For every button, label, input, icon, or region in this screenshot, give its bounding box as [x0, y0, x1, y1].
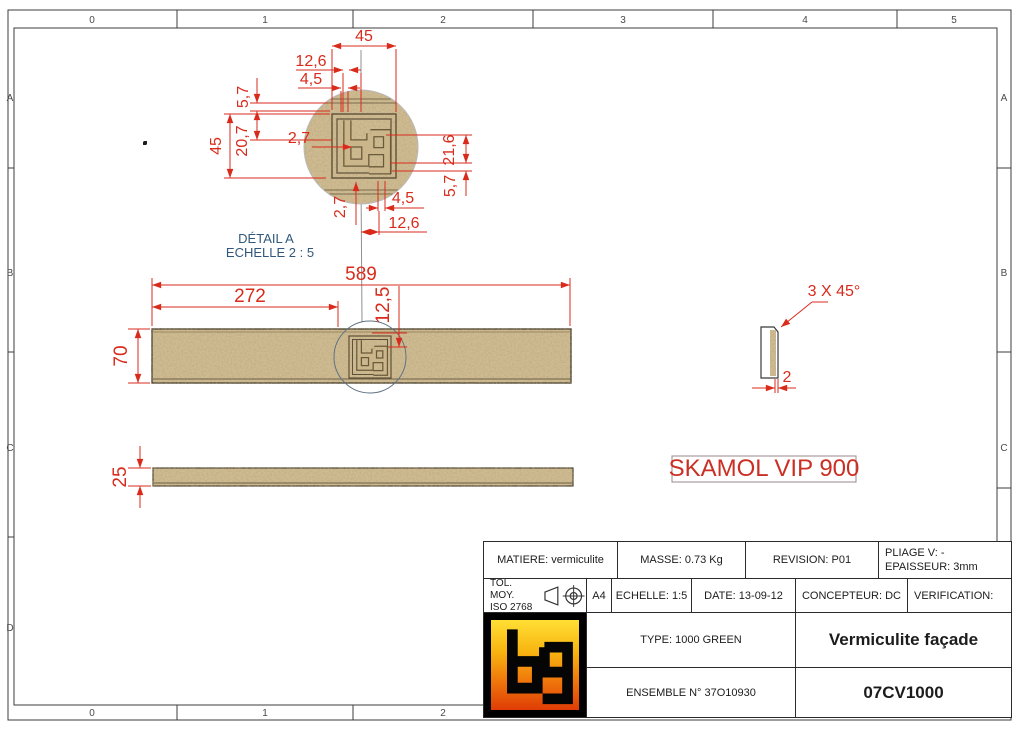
title-block-revision: REVISION: P01 [746, 542, 879, 579]
title-block-date: DATE: 13-09-12 [692, 579, 796, 613]
bg-logo-letters-icon [491, 620, 580, 710]
dim-edge: 2 [783, 369, 792, 386]
ruler-top-2: 2 [440, 15, 446, 26]
title-block-concepteur: CONCEPTEUR: DC [796, 579, 908, 613]
row-label-a-right: A [1001, 93, 1008, 104]
title-block-matiere: MATIERE: vermiculite [484, 542, 618, 579]
title-block-masse: MASSE: 0.73 Kg [618, 542, 746, 579]
bg-logo [484, 613, 587, 717]
bg-logo-gradient [491, 620, 579, 710]
detail-scale-label: ECHELLE 2 : 5 [226, 245, 314, 260]
detail-view: 45 12,6 4,5 5,7 20,7 45 2,7 21,6 5,7 4,5… [208, 28, 472, 322]
tolerance-line2: ISO 2768 [490, 602, 532, 614]
tolerance-line1: TOL. MOY. [490, 579, 539, 602]
ruler-bottom-1: 1 [262, 708, 268, 719]
ruler-top-5: 5 [951, 15, 957, 26]
title-block-ensemble: ENSEMBLE N° 37O10930 [587, 668, 796, 717]
dim-length: 589 [345, 264, 377, 285]
title-block-format: A4 [587, 579, 612, 613]
title-block-type: TYPE: 1000 GREEN [587, 613, 796, 668]
dim-width: 70 [111, 345, 132, 366]
dim-bottom-offset-1: 12,6 [388, 215, 419, 232]
ruler-bottom-0: 0 [89, 708, 95, 719]
dim-top-offset-2: 4,5 [300, 71, 322, 88]
title-block-echelle: ECHELLE: 1:5 [612, 579, 692, 613]
title-block-tolerance: TOL. MOY. ISO 2768 [484, 579, 587, 613]
material-stamp: SKAMOL VIP 900 [669, 455, 860, 482]
row-label-b-left: B [7, 268, 14, 279]
ruler-top-1: 1 [262, 15, 268, 26]
end-material-edge [770, 330, 776, 376]
row-label-b-right: B [1001, 268, 1008, 279]
dim-logo-height: 45 [208, 137, 225, 155]
ruler-top-0: 0 [89, 15, 95, 26]
plan-view: 589 272 12,5 70 [111, 264, 571, 393]
stamp-text: SKAMOL VIP 900 [669, 455, 860, 482]
row-label-a-left: A [7, 93, 14, 104]
ruler-top-4: 4 [802, 15, 808, 26]
detail-label: DÉTAIL A [238, 231, 294, 246]
dim-left-depth: 20,7 [234, 125, 251, 156]
dim-slot-left: 2,7 [288, 130, 310, 147]
stray-mark [143, 141, 147, 145]
ruler-bottom-2: 2 [440, 708, 446, 719]
pliage-value: PLIAGE V: - [885, 546, 945, 560]
projection-symbol-icon [543, 584, 586, 608]
row-label-c-left: C [6, 443, 13, 454]
dim-right-depth: 21,6 [441, 134, 458, 165]
dim-slot-bottom: 2,7 [332, 196, 349, 218]
dim-chamfer: 3 X 45° [808, 283, 861, 300]
dim-bottom-offset-2: 4,5 [392, 190, 414, 207]
dim-thickness: 25 [110, 466, 131, 487]
dim-logo-offset: 12,5 [373, 287, 394, 324]
drawing-title: Vermiculite façade [796, 613, 1011, 668]
end-view: 3 X 45° 2 [752, 283, 860, 393]
epaisseur-value: EPAISSEUR: 3mm [885, 560, 978, 574]
row-label-c-right: C [1000, 443, 1007, 454]
dim-top-offset-1: 12,6 [295, 53, 326, 70]
dim-left-edge: 5,7 [235, 86, 252, 108]
drawing-reference: 07CV1000 [796, 668, 1011, 717]
title-block-pliage-epaisseur: PLIAGE V: - EPAISSEUR: 3mm [879, 542, 1011, 579]
side-dimension-lines [128, 446, 151, 508]
title-block: MATIERE: vermiculite MASSE: 0.73 Kg REVI… [483, 541, 1012, 718]
row-label-d-left: D [6, 623, 13, 634]
drawing-sheet: 0 1 2 3 4 5 0 1 2 A B C D A B C D [0, 0, 1024, 731]
ruler-top-3: 3 [620, 15, 626, 26]
dim-logo-width: 45 [355, 28, 373, 45]
dim-right-edge: 5,7 [442, 175, 459, 197]
dim-logo-position: 272 [234, 286, 266, 307]
side-view: 25 [110, 446, 573, 508]
title-block-verification: VERIFICATION: [908, 579, 1011, 613]
